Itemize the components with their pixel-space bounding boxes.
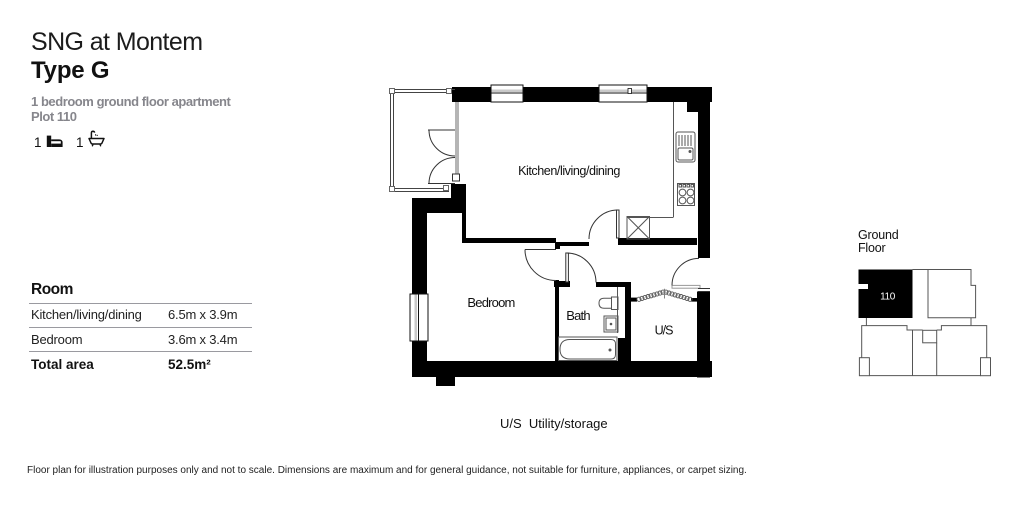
svg-text:Bedroom: Bedroom [467,295,514,310]
svg-text:110: 110 [880,292,896,303]
svg-text:Bath: Bath [566,308,590,323]
svg-text:Kitchen/living/dining: Kitchen/living/dining [518,164,620,178]
svg-text:U/S: U/S [655,324,674,338]
